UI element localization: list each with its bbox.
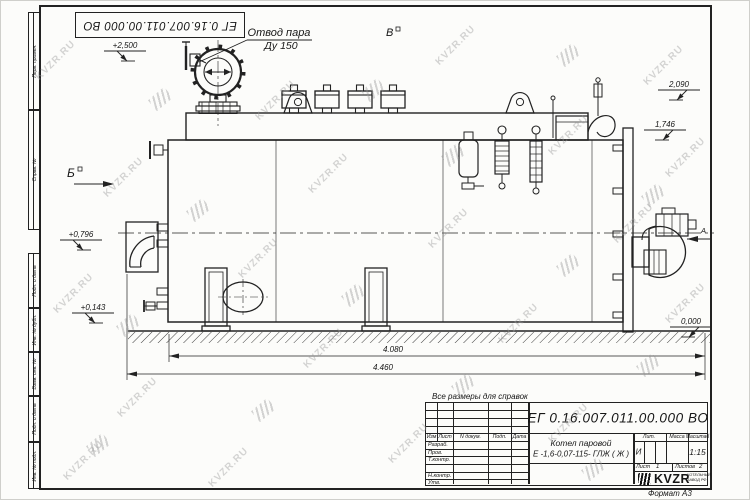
tb-sheets-label: Листов — [675, 464, 695, 470]
tb-sheets-value: 2 — [699, 464, 702, 470]
tb-row-nkontr: Н.контр. — [428, 473, 451, 479]
manhole — [218, 279, 268, 315]
tb-sheet-value: 1 — [656, 464, 659, 470]
tb-header-izm: Изм — [427, 434, 437, 440]
tb-header-date: Дата — [513, 434, 527, 440]
top-designation-text: ЕГ 0.16.007.011.00.000 ВО — [83, 19, 237, 31]
tb-designation: ЕГ 0.16.007.011.00.000 ВО — [528, 411, 709, 426]
callout-line2: Ду 150 — [263, 40, 297, 52]
elevation-marks: +2,500 2,090 1,746 +0,796 +0,143 0,000 — [60, 41, 712, 337]
tb-scale-value: 1:15 — [689, 447, 706, 457]
tb-header-doc: N докум. — [460, 434, 481, 440]
kvzr-logo-sub2: ЗАВОД РФ — [687, 478, 709, 483]
tb-mass-label: Масса — [669, 434, 684, 440]
kvzr-logo-subtext: КОТЕЛЬНЫЙ ЗАВОД РФ — [687, 473, 709, 482]
view-arrow-b: Б — [67, 166, 114, 187]
elevation-2500: +2,500 — [113, 41, 138, 50]
burner-assembly — [632, 208, 696, 278]
elevation-0143: +0,143 — [81, 303, 106, 312]
dim-4080-label: 4.080 — [383, 345, 404, 354]
control-box — [551, 78, 615, 140]
elevation-2090: 2,090 — [668, 80, 690, 89]
front-smoke-box — [126, 222, 158, 272]
elevation-0796: +0,796 — [69, 230, 94, 239]
left-fittings — [144, 141, 168, 312]
format-label: Формат А3 — [648, 489, 692, 498]
kvzr-logo-text: KVZR — [654, 472, 690, 486]
tb-lit-label: Лит. — [643, 434, 655, 440]
tb-product-line1: Котел паровой — [551, 438, 612, 448]
view-a-label: А — [700, 226, 706, 235]
view-v-label: В — [386, 27, 393, 39]
title-block: Изм Лист N докум. Подп. Дата Разраб. Про… — [425, 402, 708, 486]
tb-row-utv: Утв. — [428, 480, 441, 486]
top-designation-stamp: ЕГ 0.16.007.011.00.000 ВО — [75, 12, 245, 38]
elevation-0000: 0,000 — [681, 317, 702, 326]
dimension-4460: 4.460 — [127, 274, 705, 380]
kvzr-spring-logo-icon — [638, 473, 651, 485]
end-plate — [613, 128, 633, 332]
view-arrow-v: В — [386, 27, 400, 39]
tb-product-line2: Е -1,6-0,07-115- ГЛЖ ( Ж ) — [533, 450, 629, 459]
tb-sheet-label: Лист — [636, 464, 650, 470]
tb-row-prov: Пров. — [428, 450, 443, 456]
reference-note: Все размеры для справок — [432, 392, 528, 401]
tb-row-tkontr: Т.контр. — [428, 457, 450, 463]
dim-4460-label: 4.460 — [373, 363, 394, 372]
tb-row-razrab: Разраб. — [428, 442, 448, 448]
tb-header-sign: Подп. — [493, 434, 507, 440]
ground — [128, 331, 710, 343]
view-b-label: Б — [67, 166, 75, 180]
lifting-lugs — [284, 93, 534, 113]
tb-scale-label: Масштаб — [686, 434, 709, 440]
elevation-1746: 1,746 — [655, 120, 676, 129]
steam-valve — [182, 42, 244, 114]
kvzr-logo-sub1: КОТЕЛЬНЫЙ — [687, 473, 709, 478]
tb-lit-value: И — [636, 448, 642, 457]
view-arrow-a: А — [687, 226, 712, 242]
boiler-body — [168, 113, 623, 322]
callout-line1: Отвод пара — [248, 27, 311, 39]
tb-header-list: Лист — [438, 434, 451, 440]
level-gauges — [459, 126, 542, 194]
